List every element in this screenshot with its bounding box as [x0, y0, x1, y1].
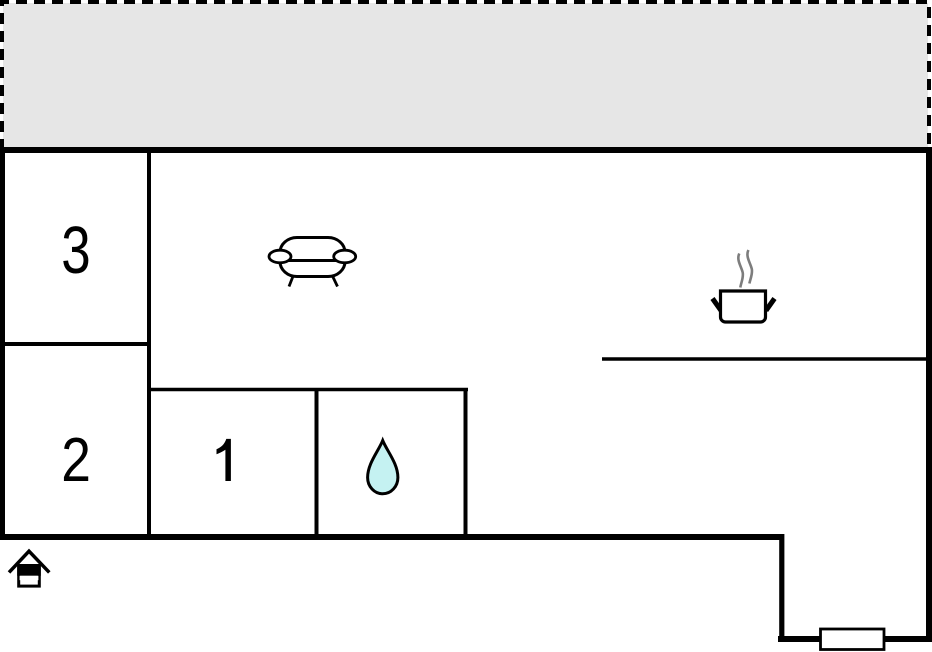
- svg-text:2: 2: [61, 426, 91, 495]
- svg-text:3: 3: [61, 212, 90, 287]
